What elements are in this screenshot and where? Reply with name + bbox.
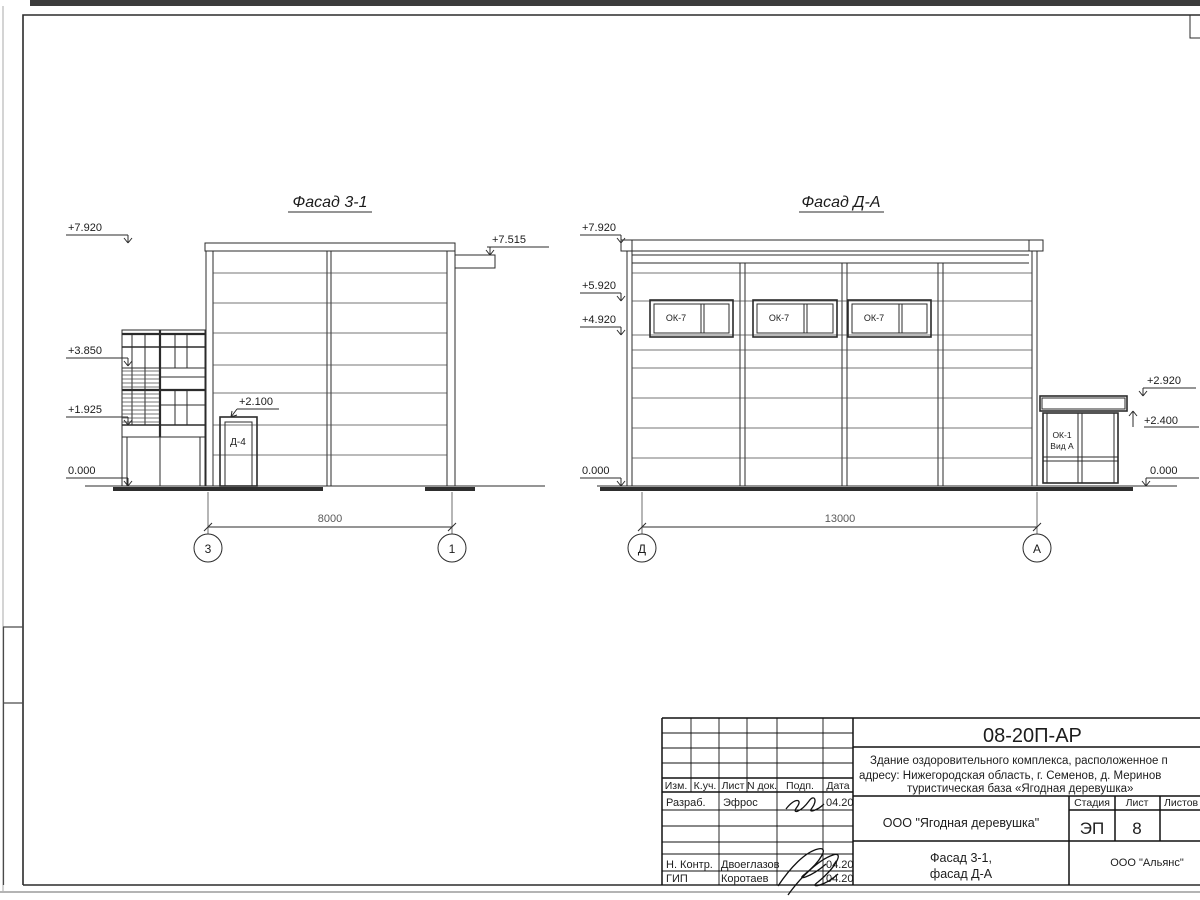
window-mullion <box>899 304 902 333</box>
row-gip-date: 04.20 <box>826 873 854 885</box>
elev-0000-left: 0.000 <box>582 465 610 477</box>
elev-0000: 0.000 <box>68 465 96 477</box>
signature-kontr-gip <box>778 849 838 895</box>
vent-pipe <box>455 255 495 268</box>
window-frame <box>848 300 931 337</box>
stair-annex <box>122 330 205 486</box>
elev-7920: +7.920 <box>68 222 102 234</box>
window-label: ОК-7 <box>864 313 884 323</box>
row-nkontr-date: 04.20 <box>826 859 854 871</box>
dimension-value: 13000 <box>825 513 856 525</box>
sheets-label: Листов <box>1164 797 1199 809</box>
window-label: ОК-7 <box>769 313 789 323</box>
frame-corner-box <box>1190 15 1200 38</box>
row-nkontr-role: Н. Контр. <box>666 859 713 871</box>
window-frame <box>753 300 837 337</box>
elev-7515-arrow <box>486 247 549 255</box>
annex-thick-bands <box>122 330 205 437</box>
title-block: Изм. К.уч. Лист N док. Подп. Дата Разраб… <box>662 718 1200 895</box>
dimension-value: 8000 <box>318 513 342 525</box>
dimension-left-facade: 8000 3 1 <box>194 492 466 562</box>
stair-louvers <box>122 371 159 422</box>
roof-cap <box>205 243 455 251</box>
scan-top-bar <box>30 0 1200 6</box>
sheet-title-line1: Фасад 3-1, <box>930 851 992 865</box>
row-gip-name: Коротаев <box>721 873 769 885</box>
window-mullion <box>701 304 704 333</box>
door-label: Д-4 <box>230 437 246 448</box>
elev-2920-arrow <box>1139 388 1196 396</box>
window-mullion <box>804 304 807 333</box>
company-name: ООО "Альянс" <box>1110 857 1184 869</box>
annex-floor-lines <box>122 347 205 425</box>
annex-label-vid-a: Вид А <box>1050 441 1074 451</box>
grid-label-1: 1 <box>449 542 456 556</box>
wall-corner-posts <box>627 251 1037 486</box>
elev-2400: +2.400 <box>1144 415 1178 427</box>
col-list: Лист <box>722 780 745 792</box>
sheet-label: Лист <box>1126 797 1149 809</box>
drawing-sheet: Фасад 3-1 Д-4 +7.920 <box>0 0 1200 900</box>
elev-0000-right-arrow <box>1142 478 1199 486</box>
elev-2100: +2.100 <box>239 396 273 408</box>
col-data: Дата <box>826 780 849 792</box>
annex-outline <box>122 330 205 486</box>
facade-3-1: Фасад 3-1 Д-4 +7.920 <box>66 194 549 562</box>
col-kuch: К.уч. <box>694 780 717 792</box>
elev-1925: +1.925 <box>68 404 102 416</box>
elev-4920-arrow <box>580 327 625 335</box>
elev-7920: +7.920 <box>582 222 616 234</box>
entrance-annex: ОК-1 Вид А <box>1040 396 1127 483</box>
door-leaf <box>225 422 252 486</box>
client-name: ООО "Ягодная деревушка" <box>883 816 1039 830</box>
col-ndok: N док. <box>747 780 777 792</box>
dimension-right-facade: 13000 Д А <box>628 492 1051 562</box>
parapet-cap <box>621 240 1043 251</box>
door-d4: Д-4 <box>220 417 257 486</box>
sheet-title-line2: фасад Д-А <box>930 867 993 881</box>
sheet-value: 8 <box>1132 819 1141 838</box>
stage-value: ЭП <box>1080 819 1104 838</box>
elev-7920-arrow <box>66 235 132 243</box>
window-ok7-2: ОК-7 <box>753 300 837 337</box>
elev-2920: +2.920 <box>1147 375 1181 387</box>
base-plate-left <box>113 487 323 491</box>
doc-number: 08-20П-АР <box>983 725 1082 747</box>
grid-label-d: Д <box>638 542 646 556</box>
window-label: ОК-7 <box>666 313 686 323</box>
elev-7920-arrow <box>580 235 625 243</box>
window-ok7-3: ОК-7 <box>848 300 931 337</box>
elevation-marks-right-facade: +7.920 +5.920 +4.920 0.000 +2.920 +2.400… <box>580 222 1199 486</box>
elevation-marks-left-facade: +7.920 +3.850 +1.925 0.000 +7.515 +2.100 <box>66 222 549 486</box>
base-plate-right <box>425 487 475 491</box>
elev-0000-left-arrow <box>580 478 625 486</box>
signature-razrab <box>786 798 824 812</box>
project-line3: туристическая база «Ягодная деревушка» <box>907 783 1133 795</box>
annex-label-ok1: ОК-1 <box>1052 430 1071 440</box>
project-line1: Здание оздоровительного комплекса, распо… <box>870 755 1168 767</box>
stage-label: Стадия <box>1074 797 1110 809</box>
elev-5920: +5.920 <box>582 280 616 292</box>
row-razrab-date: 04.20 <box>826 797 854 809</box>
row-nkontr-name: Двоеглазов <box>721 859 780 871</box>
col-izm: Изм. <box>665 780 688 792</box>
parapet-end-tabs <box>632 240 1029 251</box>
facade-d-a-title: Фасад Д-А <box>801 194 880 211</box>
project-line2: адресу: Нижегородская область, г. Семено… <box>859 770 1161 782</box>
row-razrab-name: Эфрос <box>723 797 758 809</box>
window-frame <box>650 300 733 337</box>
elev-4920: +4.920 <box>582 314 616 326</box>
base-plate <box>600 487 1133 491</box>
fascia-band <box>632 255 1029 263</box>
col-podp: Подп. <box>786 780 814 792</box>
elev-0000-right: 0.000 <box>1150 465 1178 477</box>
elev-7515: +7.515 <box>492 234 526 246</box>
wall-posts <box>206 251 455 486</box>
grid-label-3: 3 <box>205 542 212 556</box>
panel-joints <box>740 263 943 486</box>
facade-3-1-title: Фасад 3-1 <box>293 194 368 211</box>
elev-5920-arrow <box>580 293 625 301</box>
facade-d-a: Фасад Д-А ОК-7 ОК-7 ОК-7 <box>580 194 1199 562</box>
elev-3850: +3.850 <box>68 345 102 357</box>
frame-margin-boxes <box>3 627 23 885</box>
annex-lower-mullions <box>127 437 200 486</box>
elev-2100-arrow <box>231 409 279 417</box>
annex-transoms <box>122 368 205 437</box>
door-frame <box>220 417 257 486</box>
grid-label-a: А <box>1033 542 1041 556</box>
window-ok7-1: ОК-7 <box>650 300 733 337</box>
annex-fascia-inner <box>1042 398 1125 409</box>
row-razrab-role: Разраб. <box>666 797 706 809</box>
siding-lines <box>213 273 447 455</box>
row-gip-role: ГИП <box>666 873 688 885</box>
